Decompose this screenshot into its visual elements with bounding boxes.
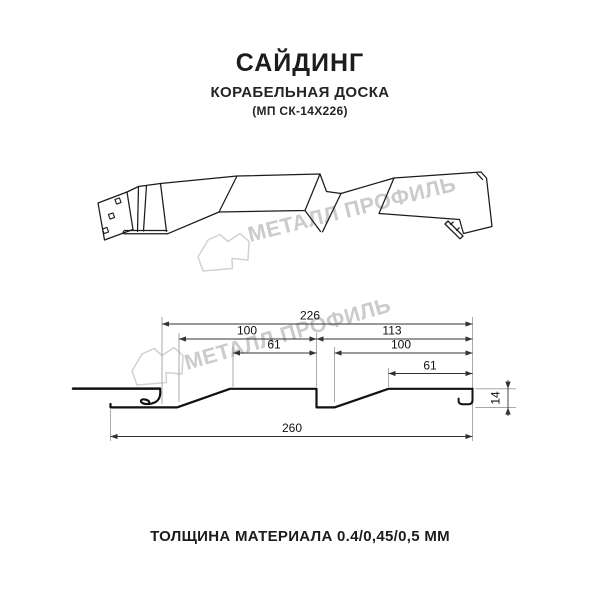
profile-outline: [73, 389, 473, 408]
dimension-label-260: 260: [282, 421, 302, 435]
product-drawing-page: САЙДИНГ КОРАБЕЛЬНАЯ ДОСКА (МП СК-14Х226)…: [0, 0, 600, 600]
dimension-label-226: 226: [300, 309, 320, 323]
metall-profil-logo-icon: [198, 234, 249, 272]
watermark-upper: МЕТАЛЛ ПРОФИЛЬ: [198, 172, 458, 271]
technical-drawing: МЕТАЛЛ ПРОФИЛЬ МЕТАЛЛ ПРОФИЛЬ: [0, 0, 600, 600]
watermark-text: МЕТАЛЛ ПРОФИЛЬ: [245, 172, 458, 247]
dimension-label-100-left: 100: [237, 324, 257, 338]
dimension-label-14: 14: [489, 391, 503, 405]
thickness-note: ТОЛЩИНА МАТЕРИАЛА 0.4/0,45/0,5 ММ: [0, 528, 600, 545]
nail-holes: [102, 198, 121, 234]
watermark-text: МЕТАЛЛ ПРОФИЛЬ: [182, 293, 394, 375]
metall-profil-logo-icon: [132, 348, 183, 386]
dimension-label-61-left: 61: [267, 338, 281, 352]
dimension-lines: [111, 324, 511, 437]
dimension-label-61-right: 61: [423, 359, 437, 373]
dimension-label-113: 113: [382, 324, 401, 338]
dimension-label-100-right: 100: [391, 338, 411, 352]
